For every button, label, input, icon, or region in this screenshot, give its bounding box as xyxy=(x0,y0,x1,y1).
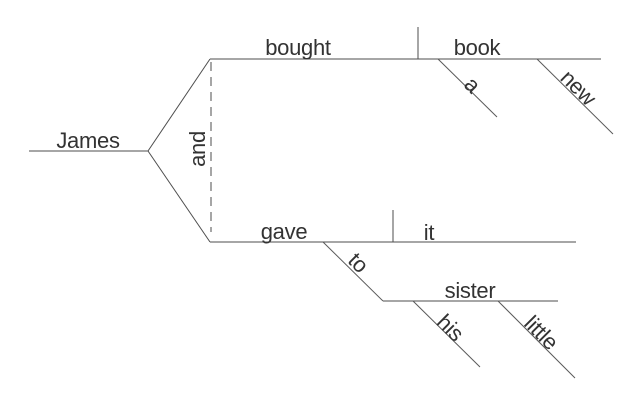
subject-word: James xyxy=(56,130,119,152)
sentence-diagram-canvas: James bought book and gave it sister a n… xyxy=(0,0,640,406)
clause2-object-word: it xyxy=(424,222,434,244)
clause2-verb-word: gave xyxy=(261,221,308,243)
prep-object-word: sister xyxy=(445,280,496,302)
clause1-verb-word: bought xyxy=(265,37,331,59)
clause1-object-word: book xyxy=(454,37,501,59)
conjunction-word: and xyxy=(187,131,209,167)
